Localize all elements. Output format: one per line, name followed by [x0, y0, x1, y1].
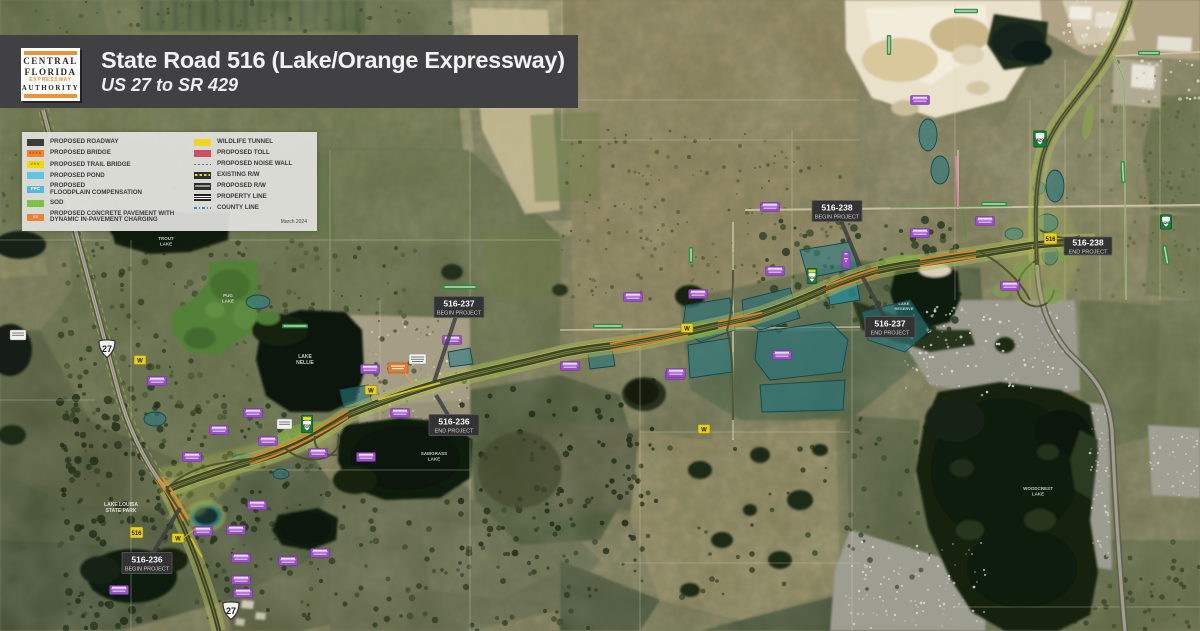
svg-text:W: W	[684, 327, 690, 333]
svg-text:W: W	[701, 428, 707, 434]
svg-text:STATE PARK: STATE PARK	[106, 508, 137, 514]
svg-text:LAKE: LAKE	[428, 457, 440, 462]
svg-text:LAKE: LAKE	[160, 242, 172, 247]
svg-text:W: W	[175, 537, 181, 543]
svg-text:END PROJECT: END PROJECT	[1069, 250, 1108, 256]
svg-text:RESERVE: RESERVE	[894, 306, 913, 311]
svg-text:516: 516	[303, 424, 311, 429]
svg-text:END PROJECT: END PROJECT	[435, 429, 474, 435]
svg-text:W: W	[368, 389, 374, 395]
svg-text:516-236: 516-236	[131, 555, 162, 565]
svg-text:BEGIN PROJECT: BEGIN PROJECT	[815, 215, 860, 221]
svg-text:516-238: 516-238	[1072, 238, 1103, 248]
svg-text:BEGIN PROJECT: BEGIN PROJECT	[437, 311, 482, 317]
svg-text:END PROJECT: END PROJECT	[871, 331, 910, 337]
svg-text:LAKE: LAKE	[1032, 492, 1044, 497]
svg-text:WOODCREST: WOODCREST	[1023, 486, 1053, 491]
svg-text:BEGIN PROJECT: BEGIN PROJECT	[125, 567, 170, 573]
svg-text:516-237: 516-237	[874, 319, 905, 329]
svg-text:TROUT: TROUT	[158, 236, 174, 241]
svg-text:516-236: 516-236	[438, 417, 469, 427]
svg-text:27: 27	[102, 344, 112, 354]
svg-text:516: 516	[131, 531, 142, 537]
svg-text:516-237: 516-237	[443, 299, 474, 309]
svg-text:429: 429	[1036, 137, 1044, 142]
svg-text:LAKE: LAKE	[222, 299, 234, 304]
svg-text:516: 516	[809, 276, 815, 280]
svg-text:27: 27	[226, 606, 236, 616]
svg-text:W: W	[137, 359, 143, 365]
svg-text:NELLIE: NELLIE	[296, 360, 314, 366]
svg-text:429: 429	[1163, 220, 1170, 225]
svg-text:PUG: PUG	[223, 293, 233, 298]
svg-text:SAWGRASS: SAWGRASS	[421, 451, 447, 456]
svg-text:516-238: 516-238	[821, 203, 852, 213]
svg-text:516: 516	[1045, 237, 1056, 243]
